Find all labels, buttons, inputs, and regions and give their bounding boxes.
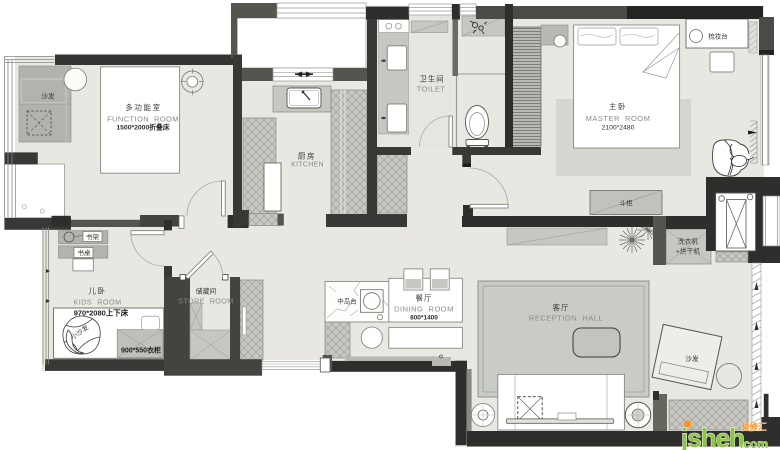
- svg-text:TOILET: TOILET: [417, 85, 446, 94]
- svg-text:KIDS ROOM: KIDS ROOM: [73, 298, 121, 307]
- svg-text:洗衣机: 洗衣机: [678, 237, 699, 246]
- svg-text:梳妆台: 梳妆台: [708, 32, 728, 41]
- svg-text:书架: 书架: [86, 232, 100, 241]
- svg-text:沙发: 沙发: [685, 354, 699, 363]
- svg-text:STORE ROOM: STORE ROOM: [178, 297, 233, 306]
- svg-text:斗柜: 斗柜: [619, 199, 633, 208]
- svg-text:1500*2000折叠床: 1500*2000折叠床: [116, 123, 169, 132]
- svg-text:900*550衣柜: 900*550衣柜: [121, 346, 161, 355]
- svg-text:FUNCTION ROOM: FUNCTION ROOM: [107, 115, 179, 124]
- svg-text:餐厅: 餐厅: [416, 294, 433, 303]
- svg-text:储藏间: 储藏间: [196, 287, 217, 296]
- svg-text:多功能室: 多功能室: [125, 102, 161, 112]
- svg-text:主卧: 主卧: [609, 101, 627, 111]
- svg-text:800*1400: 800*1400: [410, 315, 438, 322]
- svg-text:MASTER ROOM: MASTER ROOM: [586, 114, 651, 123]
- svg-text:970*2080上下床: 970*2080上下床: [74, 308, 129, 318]
- svg-text:卫生间: 卫生间: [420, 74, 445, 84]
- svg-text:KITCHEN: KITCHEN: [291, 162, 324, 169]
- svg-text:+烘干机: +烘干机: [676, 247, 701, 256]
- svg-text:jsheh: jsheh: [680, 423, 744, 450]
- svg-text:中岛台: 中岛台: [337, 297, 357, 306]
- svg-text:沙发: 沙发: [41, 92, 55, 101]
- svg-text:装修汇: 装修汇: [740, 422, 767, 432]
- svg-text:厨房: 厨房: [298, 151, 316, 161]
- svg-text:儿卧: 儿卧: [88, 287, 106, 296]
- svg-text:客厅: 客厅: [553, 302, 570, 312]
- svg-text:.com: .com: [740, 437, 768, 450]
- svg-text:DINING ROOM: DINING ROOM: [394, 305, 454, 314]
- svg-text:RECEPTION HALL: RECEPTION HALL: [529, 314, 603, 323]
- svg-text:2100*2480: 2100*2480: [602, 125, 635, 132]
- svg-text:书桌: 书桌: [78, 248, 92, 257]
